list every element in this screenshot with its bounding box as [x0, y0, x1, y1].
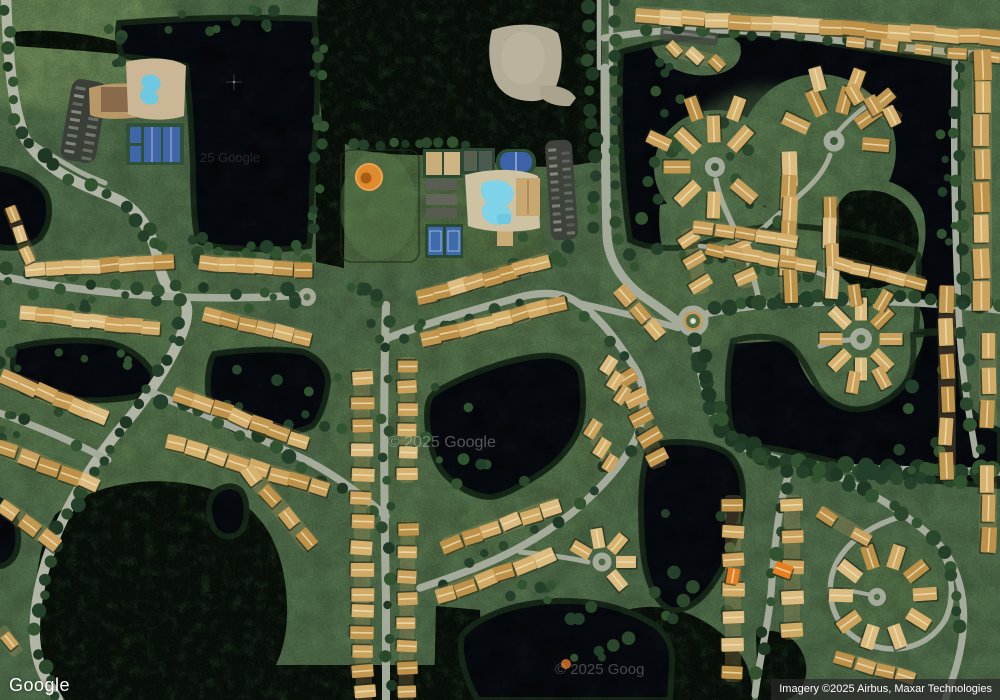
svg-text:25 Google: 25 Google [200, 150, 260, 165]
svg-text:© 2025 Goog: © 2025 Goog [555, 661, 644, 678]
svg-text:© 2025 Google: © 2025 Google [388, 434, 496, 451]
